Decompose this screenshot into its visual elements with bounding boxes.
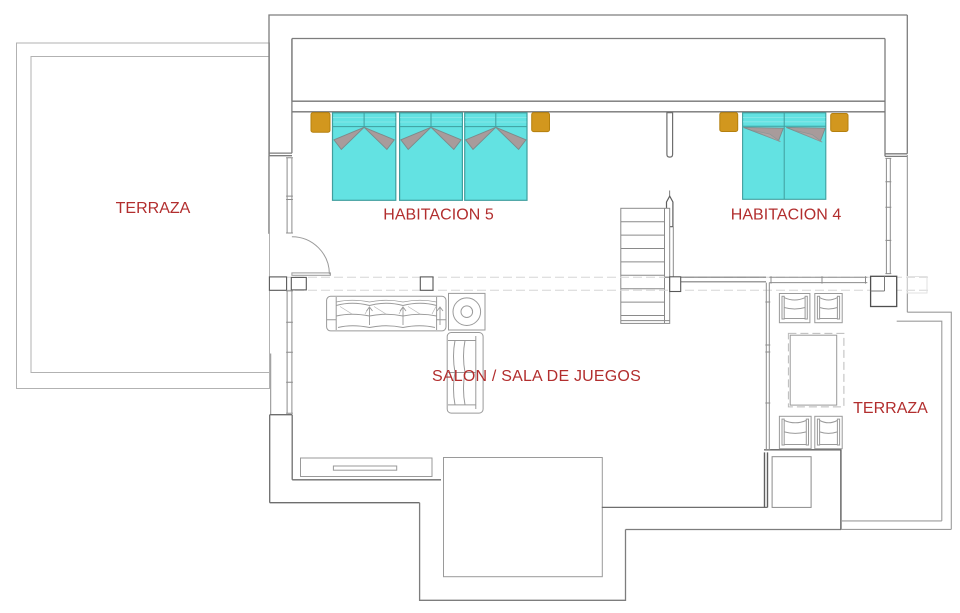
svg-text:HABITACION 5: HABITACION 5 (383, 207, 494, 224)
svg-text:HABITACION 4: HABITACION 4 (731, 207, 842, 224)
svg-text:TERRAZA: TERRAZA (116, 200, 191, 217)
svg-text:SALON / SALA DE JUEGOS: SALON / SALA DE JUEGOS (432, 368, 641, 385)
svg-text:TERRAZA: TERRAZA (853, 400, 928, 417)
